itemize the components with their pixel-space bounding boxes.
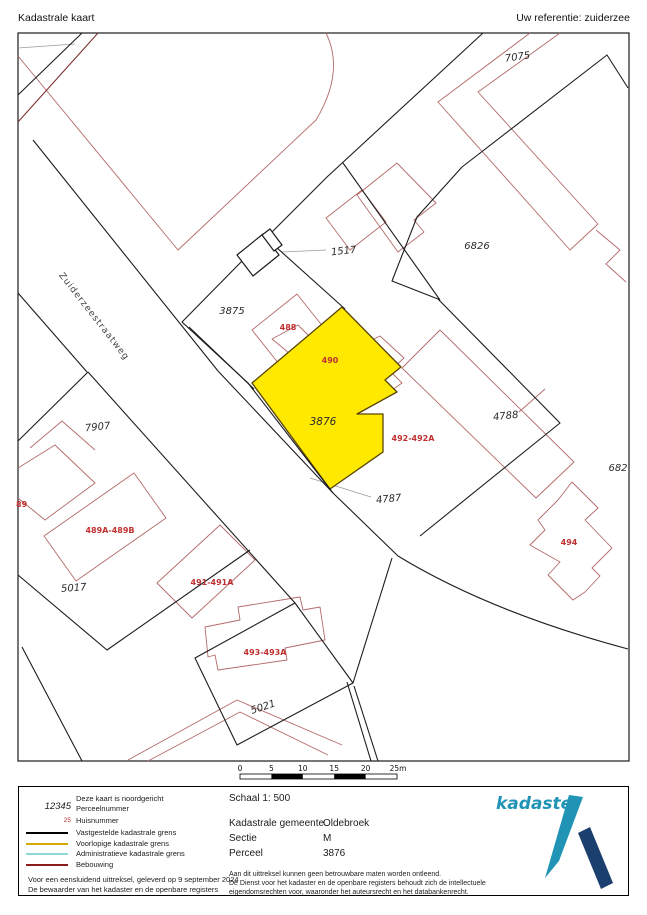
parcel-label-6826: 6826 xyxy=(464,241,489,252)
scale-tick-0: 0 xyxy=(238,764,243,773)
parcel-label-4788: 4788 xyxy=(493,410,519,424)
parcel-label-7075: 7075 xyxy=(504,50,531,64)
disclaimer-line-3: eigendomsrechten voor, waaronder het aut… xyxy=(229,889,469,896)
municipality-label: Kadastrale gemeente xyxy=(229,818,324,829)
disclaimer-line-2: De Dienst voor het kadaster en de openba… xyxy=(229,880,486,887)
parcel-label-3876: 3876 xyxy=(310,416,337,428)
house-label-489: 489A-489B xyxy=(85,526,134,535)
parcel-field-label: Perceel xyxy=(229,848,263,859)
highlighted-parcel-3876[interactable] xyxy=(252,307,401,489)
building-492 xyxy=(402,330,574,498)
administrative-boundary-sample xyxy=(26,853,68,855)
scale-bar: 0 5 10 15 20 25m xyxy=(238,764,407,779)
building-493 xyxy=(205,597,325,670)
scale-tick-20: 20 xyxy=(361,764,371,773)
building-line-sample xyxy=(26,864,68,866)
house-label-491: 491-491A xyxy=(191,578,235,587)
established-boundary-sample xyxy=(26,832,68,834)
house-label-494: 494 xyxy=(561,538,578,547)
provisional-boundary-sample xyxy=(26,843,68,845)
building-491 xyxy=(157,525,255,618)
parcel-number-legend-label: Perceelnummer xyxy=(76,804,129,813)
scale-tick-10: 10 xyxy=(298,764,308,773)
parcel-label-3875: 3875 xyxy=(219,306,244,317)
cadastral-map: 7075 1517 6826 3875 3876 4788 682 4787 7… xyxy=(0,0,647,915)
parcel-label-4787: 4787 xyxy=(376,493,403,507)
house-label-490: 490 xyxy=(322,356,339,365)
parcel-label-5017: 5017 xyxy=(61,582,88,595)
parcel-label-5021: 5021 xyxy=(249,698,277,716)
north-note: Deze kaart is noordgericht xyxy=(76,794,164,803)
parcel-label-7907: 7907 xyxy=(85,421,112,435)
scale-tick-25: 25m xyxy=(390,764,407,773)
kadaster-logo-icon xyxy=(519,787,629,895)
house-label-493: 493-493A xyxy=(244,648,288,657)
administrative-boundary-label: Administratieve kadastrale grens xyxy=(76,849,185,858)
parcel-field-value: 3876 xyxy=(323,848,345,859)
parcel-label-1517: 1517 xyxy=(331,245,358,259)
section-label: Sectie xyxy=(229,833,257,844)
provisional-boundary-label: Voorlopige kadastrale grens xyxy=(76,839,169,848)
established-boundary-label: Vastgestelde kadastrale grens xyxy=(76,828,176,837)
municipality-value: Oldebroek xyxy=(323,818,369,829)
disclaimer-line-1: Aan dit uittreksel kunnen geen betrouwba… xyxy=(229,871,441,878)
section-value: M xyxy=(323,833,331,844)
parcel-label-682: 682 xyxy=(608,463,627,474)
house-label-488: 488 xyxy=(280,323,297,332)
house-number-sample: 25 xyxy=(33,817,71,824)
issued-line-2: De bewaarder van het kadaster en de open… xyxy=(28,885,218,894)
cadastral-extract-page: Kadastrale kaart Uw referentie: zuiderze… xyxy=(0,0,647,915)
house-label-492: 492-492A xyxy=(392,434,436,443)
house-label-89: 89 xyxy=(16,500,28,509)
house-number-legend-label: Huisnummer xyxy=(76,816,119,825)
issued-line-1: Voor een eensluidend uittreksel, gelever… xyxy=(28,875,239,884)
building-line-label: Bebouwing xyxy=(76,860,113,869)
legend-box: Deze kaart is noordgericht 12345 Perceel… xyxy=(18,786,629,896)
road-label: Zuiderzeestraatweg xyxy=(56,271,131,362)
scale-tick-5: 5 xyxy=(269,764,274,773)
scale-text: Schaal 1: 500 xyxy=(229,793,290,804)
parcel-number-sample: 12345 xyxy=(33,801,71,812)
scale-tick-15: 15 xyxy=(329,764,339,773)
